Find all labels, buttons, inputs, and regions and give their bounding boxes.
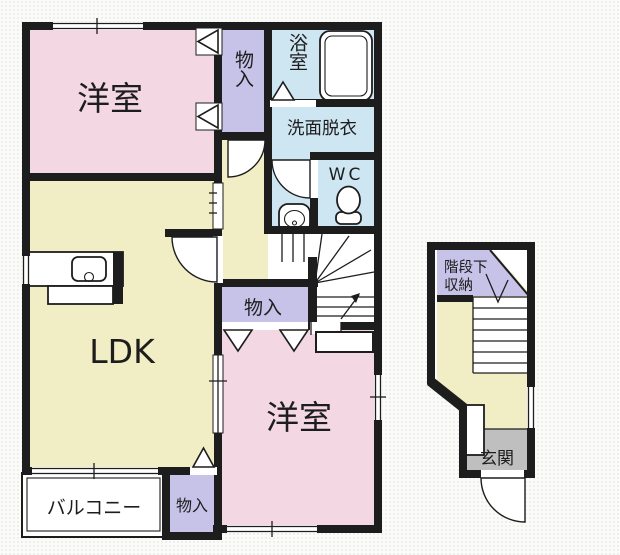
wall-1f-right [527,242,535,478]
toilet [336,187,361,225]
entrance-label: 玄関 [480,449,514,469]
wall-ldk-door-stub [165,229,217,237]
bedroom1-label: 洋室 [77,79,143,118]
kitchen-counter-front [48,286,113,304]
wall-closet-bottom-bottom [162,532,222,540]
floor-plan-page: 洋室 LDK 洋室 物入 浴室 洗面脱衣 WC 物入 物入 バルコニー 階段下 … [0,0,620,555]
kitchen-end-wall [113,252,123,304]
wall-bedroom1-bottom [22,173,222,181]
ldk-label: LDK [89,332,156,371]
floor-plan-drawing: 洋室 LDK 洋室 物入 浴室 洗面脱衣 WC 物入 物入 バルコニー 階段下 … [0,0,620,555]
wall-1f-left [427,242,435,384]
closet-bottom-label: 物入 [176,496,208,515]
under-stairs-storage-label-line2: 収納 [444,277,473,294]
window-1f-right [527,387,535,428]
wall-stairs-top [264,226,382,234]
wall-closet-mid-top [214,279,318,287]
wall-right [374,22,382,533]
wall-closet-top-bottom [214,132,272,140]
wall-closet-bottom-left [162,472,170,540]
wall-stairs-bedroom2 [341,322,382,330]
kitchen-sink [72,257,106,281]
wc-label: WC [329,165,364,185]
wall-bath-left [264,30,272,234]
wall-left [22,22,30,475]
under-stairs-storage-label-line1: 階段下 [444,259,488,276]
wall-storage-bottom [437,295,473,302]
entrance-door [481,470,525,522]
wall-stairs-stub [308,257,317,322]
wall-wc-top [310,152,382,160]
entrance-door-swing [481,478,525,522]
wall-1f-top [427,242,535,250]
bathtub [320,31,372,101]
bedroom2-label: 洋室 [266,398,332,437]
ldk-floor [26,178,218,471]
closet-top-label: 物入 [232,50,254,88]
wall-entrance-left [459,404,467,478]
window-kitchen-left [22,256,30,284]
toilet-bowl [337,187,360,214]
bathroom-label: 浴室 [286,33,308,71]
closet-mid-label: 物入 [244,297,282,319]
balcony-label: バルコニー [47,497,142,519]
washroom-label: 洗面脱衣 [287,119,357,139]
